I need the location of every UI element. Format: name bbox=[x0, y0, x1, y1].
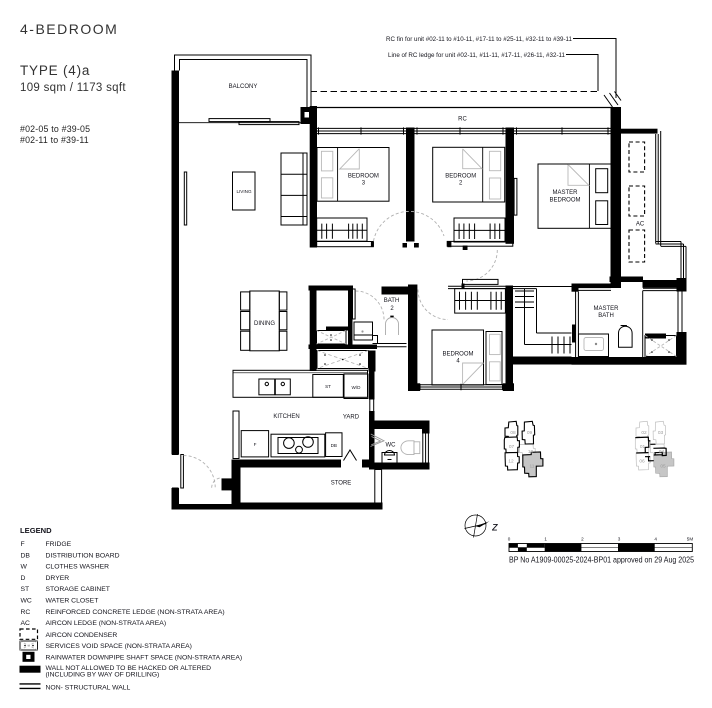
svg-text:11: 11 bbox=[530, 464, 535, 470]
svg-text:08: 08 bbox=[510, 430, 516, 436]
svg-text:ST: ST bbox=[325, 384, 331, 389]
svg-text:#02-11 to #39-11: #02-11 to #39-11 bbox=[20, 135, 89, 145]
svg-text:WC: WC bbox=[21, 598, 32, 605]
svg-text:BEDROOM: BEDROOM bbox=[442, 352, 473, 358]
svg-text:09: 09 bbox=[527, 430, 533, 436]
svg-text:NON- STRUCTURAL WALL: NON- STRUCTURAL WALL bbox=[46, 684, 131, 691]
svg-text:FRIDGE: FRIDGE bbox=[46, 541, 72, 548]
svg-text:109 sqm / 1173 sqft: 109 sqm / 1173 sqft bbox=[20, 82, 126, 94]
svg-text:03: 03 bbox=[658, 430, 664, 436]
svg-text:CLOTHES WASHER: CLOTHES WASHER bbox=[46, 564, 110, 571]
svg-text:01: 01 bbox=[640, 444, 646, 450]
svg-text:RC: RC bbox=[21, 609, 31, 616]
svg-text:WATER CLOSET: WATER CLOSET bbox=[46, 598, 99, 605]
svg-text:WC: WC bbox=[386, 443, 397, 449]
svg-text:DINING: DINING bbox=[254, 321, 275, 327]
svg-text:BEDROOM: BEDROOM bbox=[348, 174, 379, 180]
svg-text:AC: AC bbox=[636, 222, 645, 228]
svg-text:RC fin for unit #02-11 to #10-: RC fin for unit #02-11 to #10-11, #17-11… bbox=[386, 36, 573, 43]
svg-text:12: 12 bbox=[508, 459, 514, 465]
svg-text:4-BEDROOM: 4-BEDROOM bbox=[20, 21, 118, 37]
svg-text:F: F bbox=[254, 442, 257, 447]
svg-text:10: 10 bbox=[528, 449, 534, 455]
svg-text:D: D bbox=[21, 575, 26, 582]
svg-text:3: 3 bbox=[618, 537, 621, 542]
svg-text:BATH: BATH bbox=[598, 313, 614, 319]
svg-text:BEDROOM: BEDROOM bbox=[549, 198, 580, 204]
svg-text:RAINWATER DOWNPIPE SHAFT SPACE: RAINWATER DOWNPIPE SHAFT SPACE (NON-STRA… bbox=[46, 654, 243, 661]
svg-text:#02-05 to #39-05: #02-05 to #39-05 bbox=[20, 124, 90, 134]
svg-text:0: 0 bbox=[508, 537, 511, 542]
svg-text:1: 1 bbox=[544, 537, 547, 542]
svg-text:MASTER: MASTER bbox=[593, 306, 619, 312]
svg-text:5M: 5M bbox=[687, 537, 694, 542]
svg-text:W/D: W/D bbox=[352, 385, 362, 390]
svg-text:REINFORCED CONCRETE LEDGE (NON: REINFORCED CONCRETE LEDGE (NON-STRATA AR… bbox=[46, 609, 225, 616]
svg-text:AIRCON LEDGE (NON-STRATA AREA): AIRCON LEDGE (NON-STRATA AREA) bbox=[46, 620, 167, 627]
svg-text:07: 07 bbox=[509, 444, 515, 450]
svg-text:z: z bbox=[491, 520, 498, 534]
svg-text:06: 06 bbox=[639, 459, 645, 465]
svg-text:AC: AC bbox=[21, 620, 31, 627]
svg-text:BALCONY: BALCONY bbox=[229, 84, 258, 90]
svg-text:F: F bbox=[21, 541, 25, 548]
svg-text:LIVING: LIVING bbox=[236, 189, 251, 194]
svg-text:4: 4 bbox=[654, 537, 657, 542]
svg-text:MASTER: MASTER bbox=[552, 190, 578, 196]
svg-text:2: 2 bbox=[581, 537, 584, 542]
svg-text:AIRCON CONDENSER: AIRCON CONDENSER bbox=[46, 632, 118, 639]
svg-text:RC: RC bbox=[458, 117, 467, 123]
svg-text:BATH: BATH bbox=[384, 298, 400, 304]
svg-text:(INCLUDING BY WAY OF DRILLING): (INCLUDING BY WAY OF DRILLING) bbox=[46, 672, 160, 679]
svg-text:05: 05 bbox=[660, 464, 666, 470]
svg-text:02: 02 bbox=[641, 430, 647, 436]
svg-text:Line of RC ledge for unit #02-: Line of RC ledge for unit #02-11, #11-11… bbox=[388, 52, 566, 59]
svg-text:LEGEND: LEGEND bbox=[20, 526, 52, 535]
svg-text:DB: DB bbox=[21, 552, 31, 559]
svg-text:DB: DB bbox=[331, 443, 337, 448]
svg-text:SERVICES VOID SPACE (NON-STRAT: SERVICES VOID SPACE (NON-STRATA AREA) bbox=[46, 643, 192, 650]
svg-text:KITCHEN: KITCHEN bbox=[273, 414, 299, 420]
svg-text:YARD: YARD bbox=[343, 415, 360, 421]
svg-text:TYPE (4)a: TYPE (4)a bbox=[20, 63, 90, 78]
svg-text:BP No A1909-00025-2024-BP01 ap: BP No A1909-00025-2024-BP01 approved on … bbox=[509, 556, 694, 565]
svg-text:DRYER: DRYER bbox=[46, 575, 70, 582]
svg-text:DISTRIBUTION BOARD: DISTRIBUTION BOARD bbox=[46, 552, 120, 559]
svg-text:04: 04 bbox=[659, 449, 665, 455]
svg-text:STORE: STORE bbox=[331, 481, 352, 487]
svg-text:ST: ST bbox=[21, 586, 30, 593]
svg-text:STORAGE CABINET: STORAGE CABINET bbox=[46, 586, 110, 593]
svg-text:BEDROOM: BEDROOM bbox=[445, 174, 476, 180]
svg-text:W: W bbox=[21, 564, 28, 571]
